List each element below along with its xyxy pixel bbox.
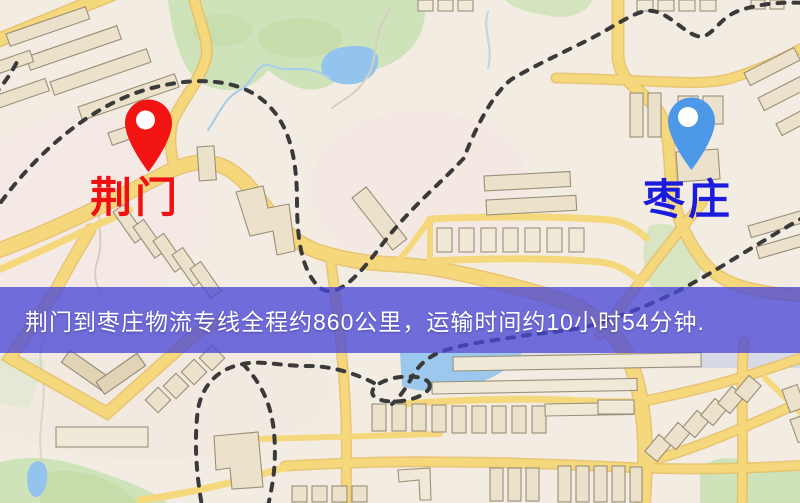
map-canvas: 荆门 枣庄 荆门到枣庄物流专线全程约860公里，运输时间约10小时54分钟.	[0, 0, 800, 503]
map-background	[0, 0, 800, 503]
destination-label: 枣庄	[643, 179, 733, 221]
origin-label: 荆门	[90, 177, 180, 219]
info-banner-text: 荆门到枣庄物流专线全程约860公里，运输时间约10小时54分钟.	[0, 303, 705, 337]
info-banner: 荆门到枣庄物流专线全程约860公里，运输时间约10小时54分钟.	[0, 287, 800, 353]
destination-pin-hole	[678, 107, 698, 127]
ground-tints	[0, 110, 530, 460]
destination-pin-icon[interactable]	[663, 94, 720, 172]
origin-pin-icon[interactable]	[120, 96, 177, 174]
origin-pin-hole	[136, 111, 155, 130]
